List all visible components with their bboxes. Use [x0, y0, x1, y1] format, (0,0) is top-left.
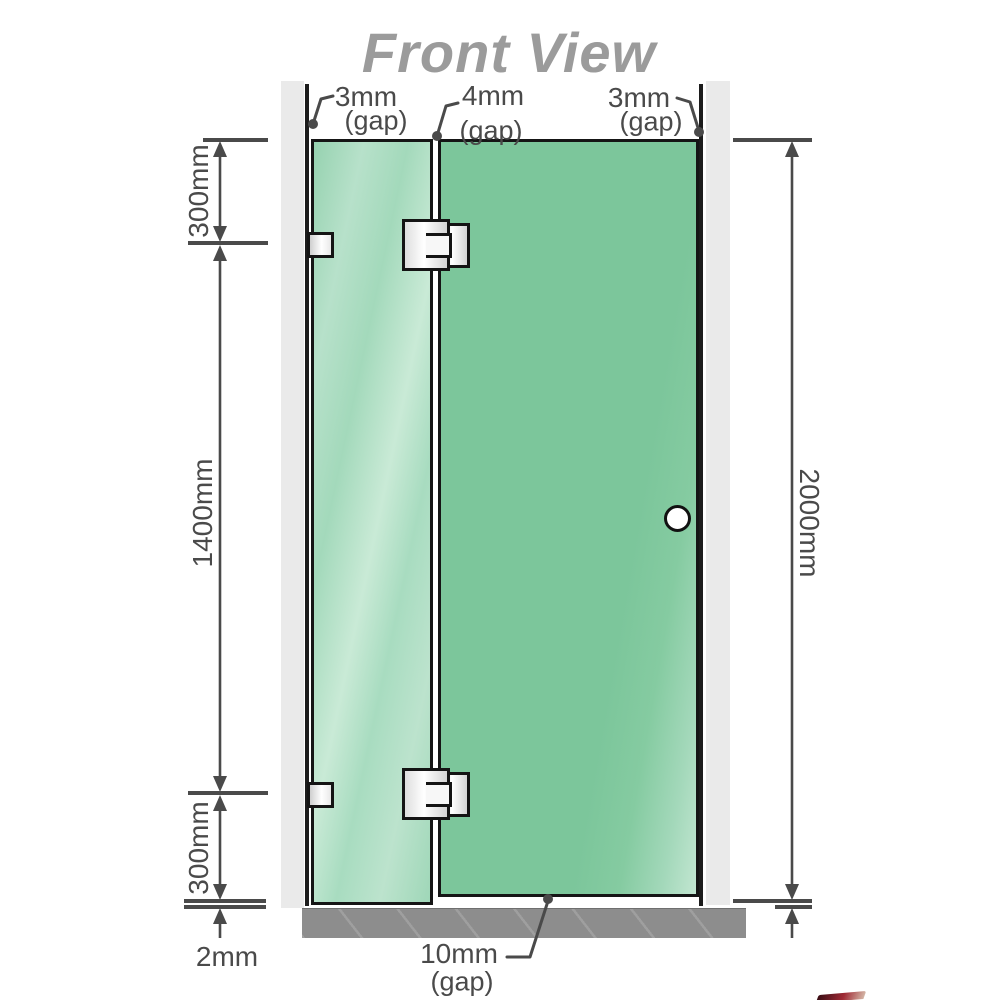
dim-label-floor-gap: 2mm: [196, 943, 258, 971]
dimension-overlay: [0, 0, 1000, 1000]
dim-label-middle-left: 1400mm: [189, 459, 217, 568]
gap-label-bottom-suffix: (gap): [430, 969, 493, 996]
dim-label-bottom-left: 300mm: [185, 801, 213, 894]
gap-label-middle-suffix: (gap): [459, 118, 522, 145]
dim-label-overall-height: 2000mm: [795, 469, 823, 578]
dim-label-top-left: 300mm: [185, 144, 213, 237]
gap-label-right-suffix: (gap): [619, 109, 682, 136]
front-view-diagram: Front View: [0, 0, 1000, 1000]
gap-label-left-suffix: (gap): [344, 108, 407, 135]
gap-label-bottom-value: 10mm: [420, 940, 498, 968]
gap-label-middle-value: 4mm: [462, 82, 524, 110]
